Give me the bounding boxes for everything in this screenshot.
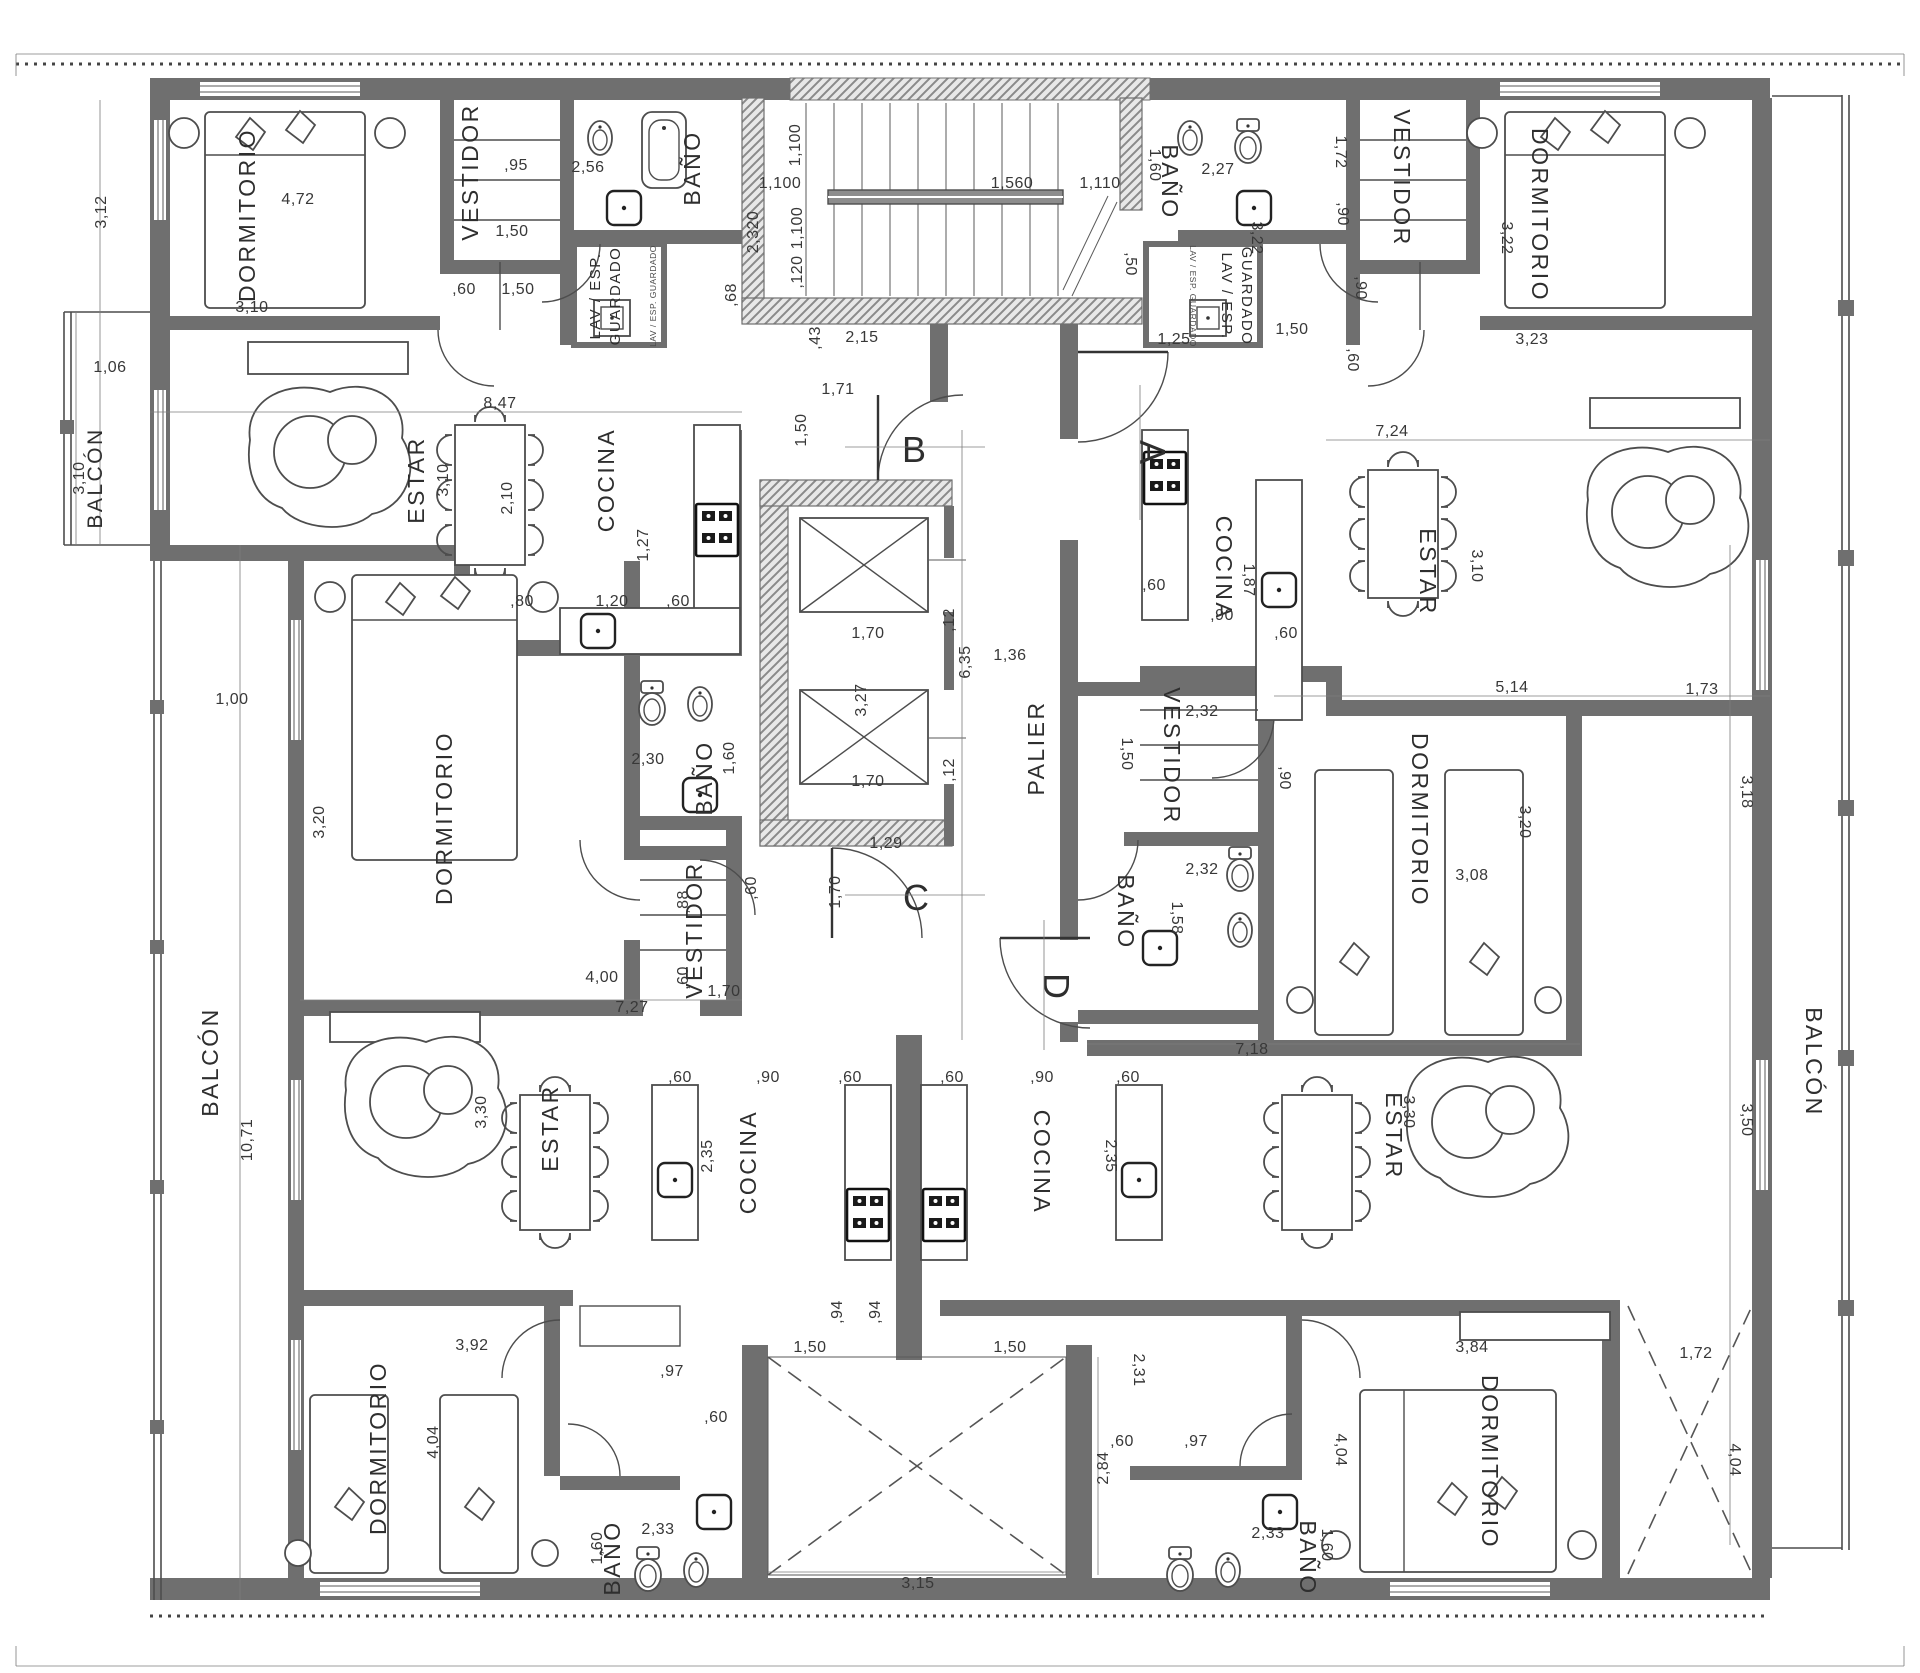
room-label-cocina-d: COCINA <box>1029 1110 1055 1214</box>
closet-label-b-2: GUARDADO <box>607 247 624 346</box>
dim-label: 10,71 <box>239 1119 256 1162</box>
dim-label: ,90 <box>1334 202 1351 226</box>
room-label-cocina-c: COCINA <box>735 1110 761 1214</box>
closet-label-b-1: LAV / ESP. <box>587 253 604 340</box>
dim-label: ,120 <box>789 255 806 288</box>
dim-label: 4,04 <box>1332 1433 1349 1466</box>
dim-label: 1,100 <box>789 207 806 250</box>
dim-label: ,12 <box>941 608 958 632</box>
dim-label: 2,15 <box>845 329 878 346</box>
patio-void <box>768 1357 1066 1575</box>
room-label-vestidor-b: VESTIDOR <box>457 103 483 241</box>
dim-label: 4,04 <box>1726 1443 1743 1476</box>
dim-label: 2,35 <box>699 1139 716 1172</box>
dim-label: 4,72 <box>281 191 314 208</box>
dim-label: 2,33 <box>1251 1525 1284 1542</box>
dim-label: 3,10 <box>235 299 268 316</box>
room-label-palier: PALIER <box>1023 700 1049 795</box>
balcony-left <box>150 545 164 1600</box>
dim-label: ,95 <box>504 157 528 174</box>
room-label-estar-c: ESTAR <box>537 1084 563 1171</box>
dim-label: 2,35 <box>1102 1139 1119 1172</box>
dim-label: 1,70 <box>851 625 884 642</box>
balcony-right <box>1772 95 1854 1550</box>
dim-label: ,94 <box>829 1300 846 1324</box>
dim-label: 2,320 <box>745 211 762 254</box>
room-label-bano-b: BAÑO <box>679 130 705 205</box>
dim-label: ,90 <box>1352 276 1369 300</box>
dim-label: ,90 <box>1210 607 1234 624</box>
dim-label: 2,10 <box>499 481 516 514</box>
dim-label: 5,14 <box>1495 679 1528 696</box>
dim-label: ,60 <box>1116 1069 1140 1086</box>
dim-label: 2,56 <box>571 159 604 176</box>
closet-label-a-2: GUARDADO <box>1238 247 1255 346</box>
closet-label-a-1: LAV / ESP. <box>1218 253 1235 340</box>
dim-label: 3,08 <box>1455 867 1488 884</box>
unit-letter-c: C <box>903 877 929 918</box>
room-label-vestidor-a: VESTIDOR <box>1389 109 1415 247</box>
room-label-balcon-right: BALCÓN <box>1801 1007 1827 1117</box>
dim-label: 1,50 <box>495 223 528 240</box>
dim-label: ,60 <box>675 966 692 990</box>
dim-label: ,97 <box>1184 1433 1208 1450</box>
dim-label: 1,70 <box>707 983 740 1000</box>
dim-label: ,60 <box>668 1069 692 1086</box>
dim-label: ,60 <box>743 876 760 900</box>
dim-label: ,68 <box>723 283 740 307</box>
dim-label: ,94 <box>867 1300 884 1324</box>
dim-label: ,90 <box>1276 766 1293 790</box>
dim-label: 1,560 <box>991 175 1034 192</box>
closet-label-b-small: LAV / ESP. GUARDADO <box>648 245 658 347</box>
dim-label: 1,50 <box>501 281 534 298</box>
room-label-bano-d: BAÑO <box>1113 874 1139 949</box>
dim-label: 1,110 <box>1079 175 1120 192</box>
room-label-vestidor-d: VESTIDOR <box>1159 687 1185 825</box>
dim-label: ,88 <box>675 890 692 914</box>
room-label-bano-c1: BAÑO <box>691 740 717 815</box>
dim-label: ,90 <box>1030 1069 1054 1086</box>
dim-label: ,97 <box>660 1363 684 1380</box>
dim-label: 2,32 <box>1185 861 1218 878</box>
dim-label: 7,24 <box>1375 423 1408 440</box>
room-label-cocina-b: COCINA <box>593 428 619 532</box>
staircase <box>806 103 1117 296</box>
dim-label: ,60 <box>666 593 690 610</box>
dim-label: ,43 <box>807 326 824 350</box>
elevators <box>760 480 966 846</box>
dim-label: 3,27 <box>853 683 870 716</box>
room-label-estar-a: ESTAR <box>1415 528 1441 615</box>
dim-label: 3,22 <box>1498 221 1515 254</box>
room-label-balcon-left: BALCÓN <box>197 1007 223 1117</box>
dim-label: 3,20 <box>1516 805 1533 838</box>
room-label-bano-d2: BAÑO <box>1295 1520 1321 1595</box>
room-label-dormitorio-a: DORMITORIO <box>1527 128 1553 302</box>
dim-label: ,80 <box>510 593 534 610</box>
room-label-estar-b: ESTAR <box>403 436 429 523</box>
unit-letter-b: B <box>902 429 926 470</box>
dim-label: 1,87 <box>1240 563 1257 596</box>
dim-label: 7,27 <box>615 999 648 1016</box>
dim-label: 1,71 <box>821 381 854 398</box>
dim-label: 1,50 <box>1275 321 1308 338</box>
dim-label: 1,50 <box>993 1339 1026 1356</box>
dim-label: 2,32 <box>1185 703 1218 720</box>
dim-label: ,12 <box>941 758 958 782</box>
dim-label: 4,04 <box>425 1425 442 1458</box>
dim-label: 1,58 <box>1168 901 1185 934</box>
room-label-cocina-a: COCINA <box>1211 516 1237 620</box>
floor-plan-page: DORMITORIO VESTIDOR BAÑO ESTAR COCINA LA… <box>0 0 1920 1673</box>
dim-label: 4,00 <box>585 969 618 986</box>
dim-label: 2,33 <box>641 1521 674 1538</box>
dim-label: 3,30 <box>473 1095 490 1128</box>
dim-label: 1,36 <box>993 647 1026 664</box>
dim-label: 1,27 <box>635 528 652 561</box>
floor-plan-drawing: DORMITORIO VESTIDOR BAÑO ESTAR COCINA LA… <box>0 0 1920 1673</box>
dim-label: 3,50 <box>1738 1103 1755 1136</box>
dim-label: 1,72 <box>1679 1345 1712 1362</box>
dim-label: 1,50 <box>793 1339 826 1356</box>
dim-label: 1,50 <box>793 413 810 446</box>
dim-label: 1,73 <box>1685 681 1718 698</box>
dim-label: 3,18 <box>1738 775 1755 808</box>
dim-label: 1,100 <box>787 124 804 167</box>
dim-label: 3,22 <box>1248 221 1265 254</box>
room-label-dormitorio-c2: DORMITORIO <box>365 1361 391 1535</box>
dim-label: 1,60 <box>589 1531 606 1564</box>
dim-label: 3,92 <box>455 1337 488 1354</box>
dim-label: 3,15 <box>901 1575 934 1592</box>
dim-label: ,60 <box>1142 577 1166 594</box>
unit-letter-d: D <box>1036 973 1077 999</box>
dim-label: 6,35 <box>957 645 974 678</box>
unit-a-furniture <box>1142 111 1748 720</box>
dim-label: 1,00 <box>215 691 248 708</box>
dim-label: ,60 <box>838 1069 862 1086</box>
dim-label: 2,84 <box>1095 1451 1112 1484</box>
dim-label: 2,30 <box>631 751 664 768</box>
dim-label: ,50 <box>1122 252 1139 276</box>
dim-label: ,60 <box>940 1069 964 1086</box>
room-label-dormitorio-d: DORMITORIO <box>1407 733 1433 907</box>
dim-label: 3,10 <box>435 463 452 496</box>
dim-label: 3,30 <box>1400 1095 1417 1128</box>
dim-label: 3,10 <box>71 461 88 494</box>
dim-label: ,60 <box>1274 625 1298 642</box>
interior-doors <box>438 244 1424 1476</box>
dim-label: 1,25 <box>1157 331 1190 348</box>
dim-label: 3,20 <box>311 805 328 838</box>
dim-label: 1,50 <box>1118 737 1135 770</box>
room-label-dormitorio-b: DORMITORIO <box>234 128 260 302</box>
dim-label: 1,100 <box>759 175 802 192</box>
dim-label: 1,20 <box>595 593 628 610</box>
dim-label: ,60 <box>704 1409 728 1426</box>
dim-label: 1,72 <box>1332 135 1349 168</box>
dim-label: ,60 <box>1110 1433 1134 1450</box>
dim-label: 3,23 <box>1515 331 1548 348</box>
dim-label: 2,27 <box>1201 161 1234 178</box>
dim-label: 3,84 <box>1455 1339 1488 1356</box>
dim-label: ,60 <box>1344 348 1361 372</box>
dim-label: 1,70 <box>851 773 884 790</box>
unit-letter-a: A <box>1132 440 1173 464</box>
dim-label: 1,60 <box>1318 1528 1335 1561</box>
dim-label: 1,60 <box>1146 148 1163 181</box>
room-label-dormitorio-c1: DORMITORIO <box>431 731 457 905</box>
dim-label: 2,31 <box>1130 1353 1147 1386</box>
dim-label: ,60 <box>452 281 476 298</box>
dim-label: 1,06 <box>93 359 126 376</box>
dim-label: 1,70 <box>827 875 844 908</box>
dim-label: 3,12 <box>93 195 110 228</box>
dim-label: 3,10 <box>1468 549 1485 582</box>
room-label-dormitorio-d2: DORMITORIO <box>1477 1375 1503 1549</box>
dim-label: 1,29 <box>869 835 902 852</box>
dim-label: ,90 <box>756 1069 780 1086</box>
dim-label: 1,60 <box>721 741 738 774</box>
dim-label: 7,18 <box>1235 1041 1268 1058</box>
dim-label: 8,47 <box>483 395 516 412</box>
